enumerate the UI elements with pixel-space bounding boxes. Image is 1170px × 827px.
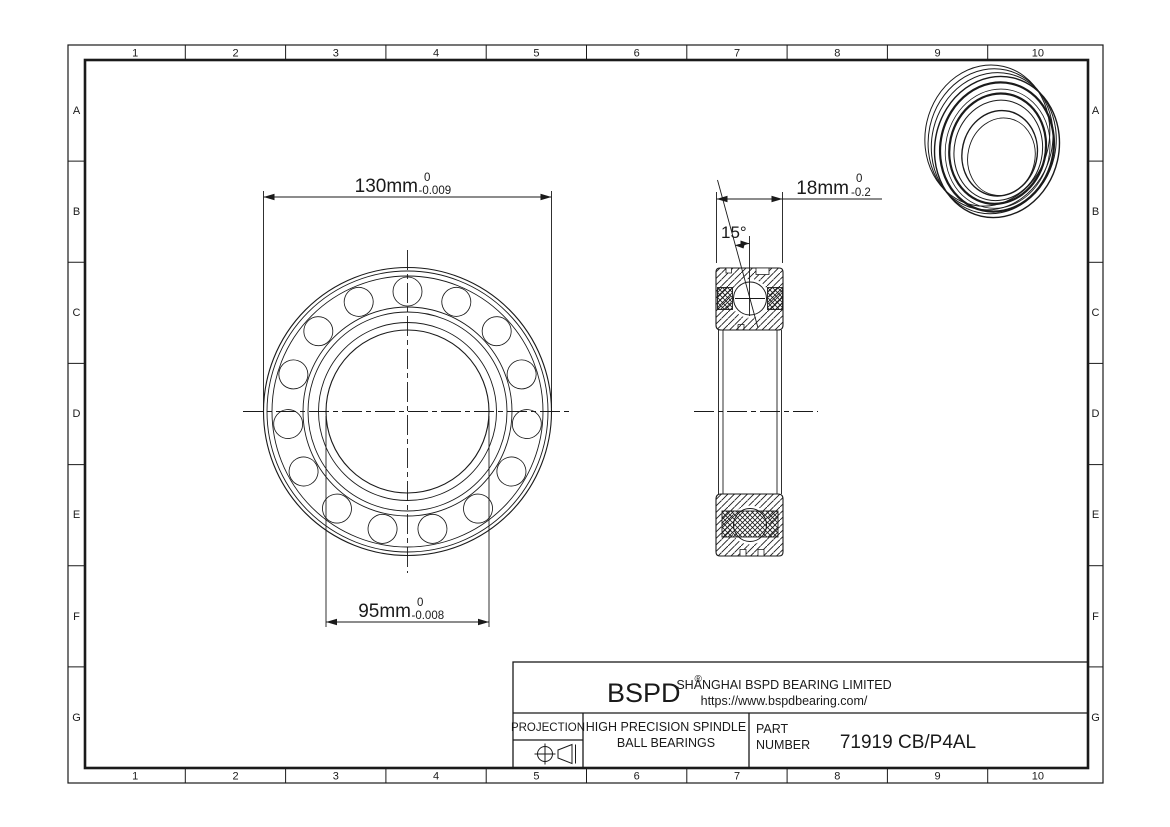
projection-label: PROJECTION [511,722,585,734]
bottom-ruler: 1 2 3 4 5 6 7 8 9 10 [132,771,1044,783]
isometric-view [909,52,1075,230]
first-angle-projection-icon [535,744,576,765]
product-title-line1: HIGH PRECISION SPINDLE [586,720,746,734]
left-ruler: A B C D E F G [72,105,81,724]
arrowhead [478,619,489,626]
top-ruler: 1 2 3 4 5 6 7 8 9 10 [132,48,1044,60]
part-label-line2: NUMBER [756,738,810,752]
col-label-10b: 10 [1032,771,1044,783]
col-label-7: 7 [734,48,740,60]
title-block: BSPD ® SHANGHAI BSPD BEARING LIMITED htt… [511,662,1088,768]
front-view-centerlines [243,250,572,573]
col-label-8: 8 [834,48,840,60]
width-tol-upper: 0 [856,173,862,185]
rim-ellipse [914,56,1067,222]
arrowhead [326,619,337,626]
col-label-9b: 9 [935,771,941,783]
outer-diameter-tol-lower: -0.009 [419,185,452,197]
arrowhead [541,194,552,201]
width-value: 18mm [796,178,849,199]
col-label-4: 4 [433,48,439,60]
row-label-C-r: C [1092,307,1100,319]
bore-diameter-value: 95mm [358,601,411,622]
sheet-border [68,45,1103,783]
row-label-E: E [73,509,80,521]
column-ticks [185,45,987,783]
row-label-D: D [73,408,81,420]
row-label-G: G [72,712,81,724]
bore-diameter-tol-lower: -0.008 [412,610,445,622]
right-ruler: A B C D E F G [1091,105,1100,724]
row-label-D-r: D [1092,408,1100,420]
bore-tube-lines [719,330,782,494]
seal-notch-bottom [758,550,764,557]
drawing-sheet: 1 2 3 4 5 6 7 8 9 10 1 2 3 4 5 6 7 8 9 1… [0,0,1170,827]
dimension-width: 18mm 0 -0.2 [717,173,883,263]
row-label-F-r: F [1092,611,1099,623]
seal-notch [726,268,732,273]
cage-cross-section-right [768,288,783,310]
row-label-B-r: B [1092,206,1099,218]
col-label-5b: 5 [533,771,539,783]
cross-section-view: 15° [694,180,818,556]
col-label-5: 5 [533,48,539,60]
row-label-B: B [73,206,80,218]
col-label-3b: 3 [333,771,339,783]
row-ticks [68,161,1103,667]
col-label-1b: 1 [132,771,138,783]
engineering-drawing-svg: 1 2 3 4 5 6 7 8 9 10 1 2 3 4 5 6 7 8 9 1… [0,0,1170,827]
col-label-6: 6 [634,48,640,60]
row-label-E-r: E [1092,509,1099,521]
col-label-10: 10 [1032,48,1044,60]
arrowhead [772,196,783,203]
outer-diameter-value: 130mm [355,176,418,197]
row-label-C: C [73,307,81,319]
row-label-A-r: A [1092,105,1100,117]
col-label-1: 1 [132,48,138,60]
brand-logo: BSPD [607,678,681,708]
contact-angle-value: 15° [721,223,747,242]
col-label-8b: 8 [834,771,840,783]
front-view [243,250,572,573]
row-label-A: A [73,105,81,117]
col-label-2b: 2 [232,771,238,783]
col-label-3: 3 [333,48,339,60]
outer-diameter-tol-upper: 0 [424,172,430,184]
part-number: 71919 CB/P4AL [840,732,976,753]
arrowhead [264,194,275,201]
col-label-4b: 4 [433,771,439,783]
cage-cross-section-left [718,288,733,310]
bore-diameter-tol-upper: 0 [417,597,423,609]
company-website: https://www.bspdbearing.com/ [701,694,868,708]
cage-mesh-bottom [722,511,778,537]
col-label-6b: 6 [634,771,640,783]
row-label-F: F [73,611,80,623]
product-title-line2: BALL BEARINGS [617,736,715,750]
col-label-9: 9 [935,48,941,60]
company-name: SHANGHAI BSPD BEARING LIMITED [676,678,891,692]
outer-border [68,45,1103,783]
row-label-G-r: G [1091,712,1100,724]
col-label-7b: 7 [734,771,740,783]
seal-notch [756,268,769,275]
col-label-2: 2 [232,48,238,60]
part-label-line1: PART [756,722,789,736]
seal-notch-bottom [740,550,746,557]
width-tol-lower: -0.2 [851,187,871,199]
